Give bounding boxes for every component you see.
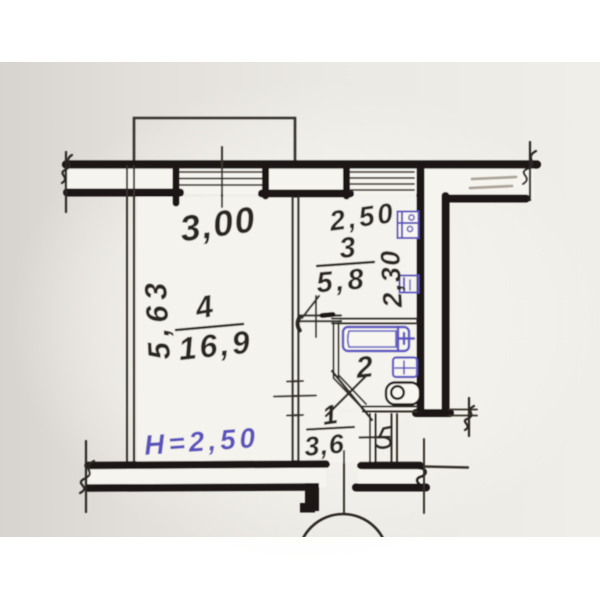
svg-text:3: 3	[338, 232, 357, 266]
svg-text:2,30: 2,30	[375, 249, 408, 310]
svg-text:5,63: 5,63	[138, 276, 177, 360]
svg-text:5,8: 5,8	[315, 263, 368, 299]
svg-text:3,6: 3,6	[303, 429, 346, 462]
